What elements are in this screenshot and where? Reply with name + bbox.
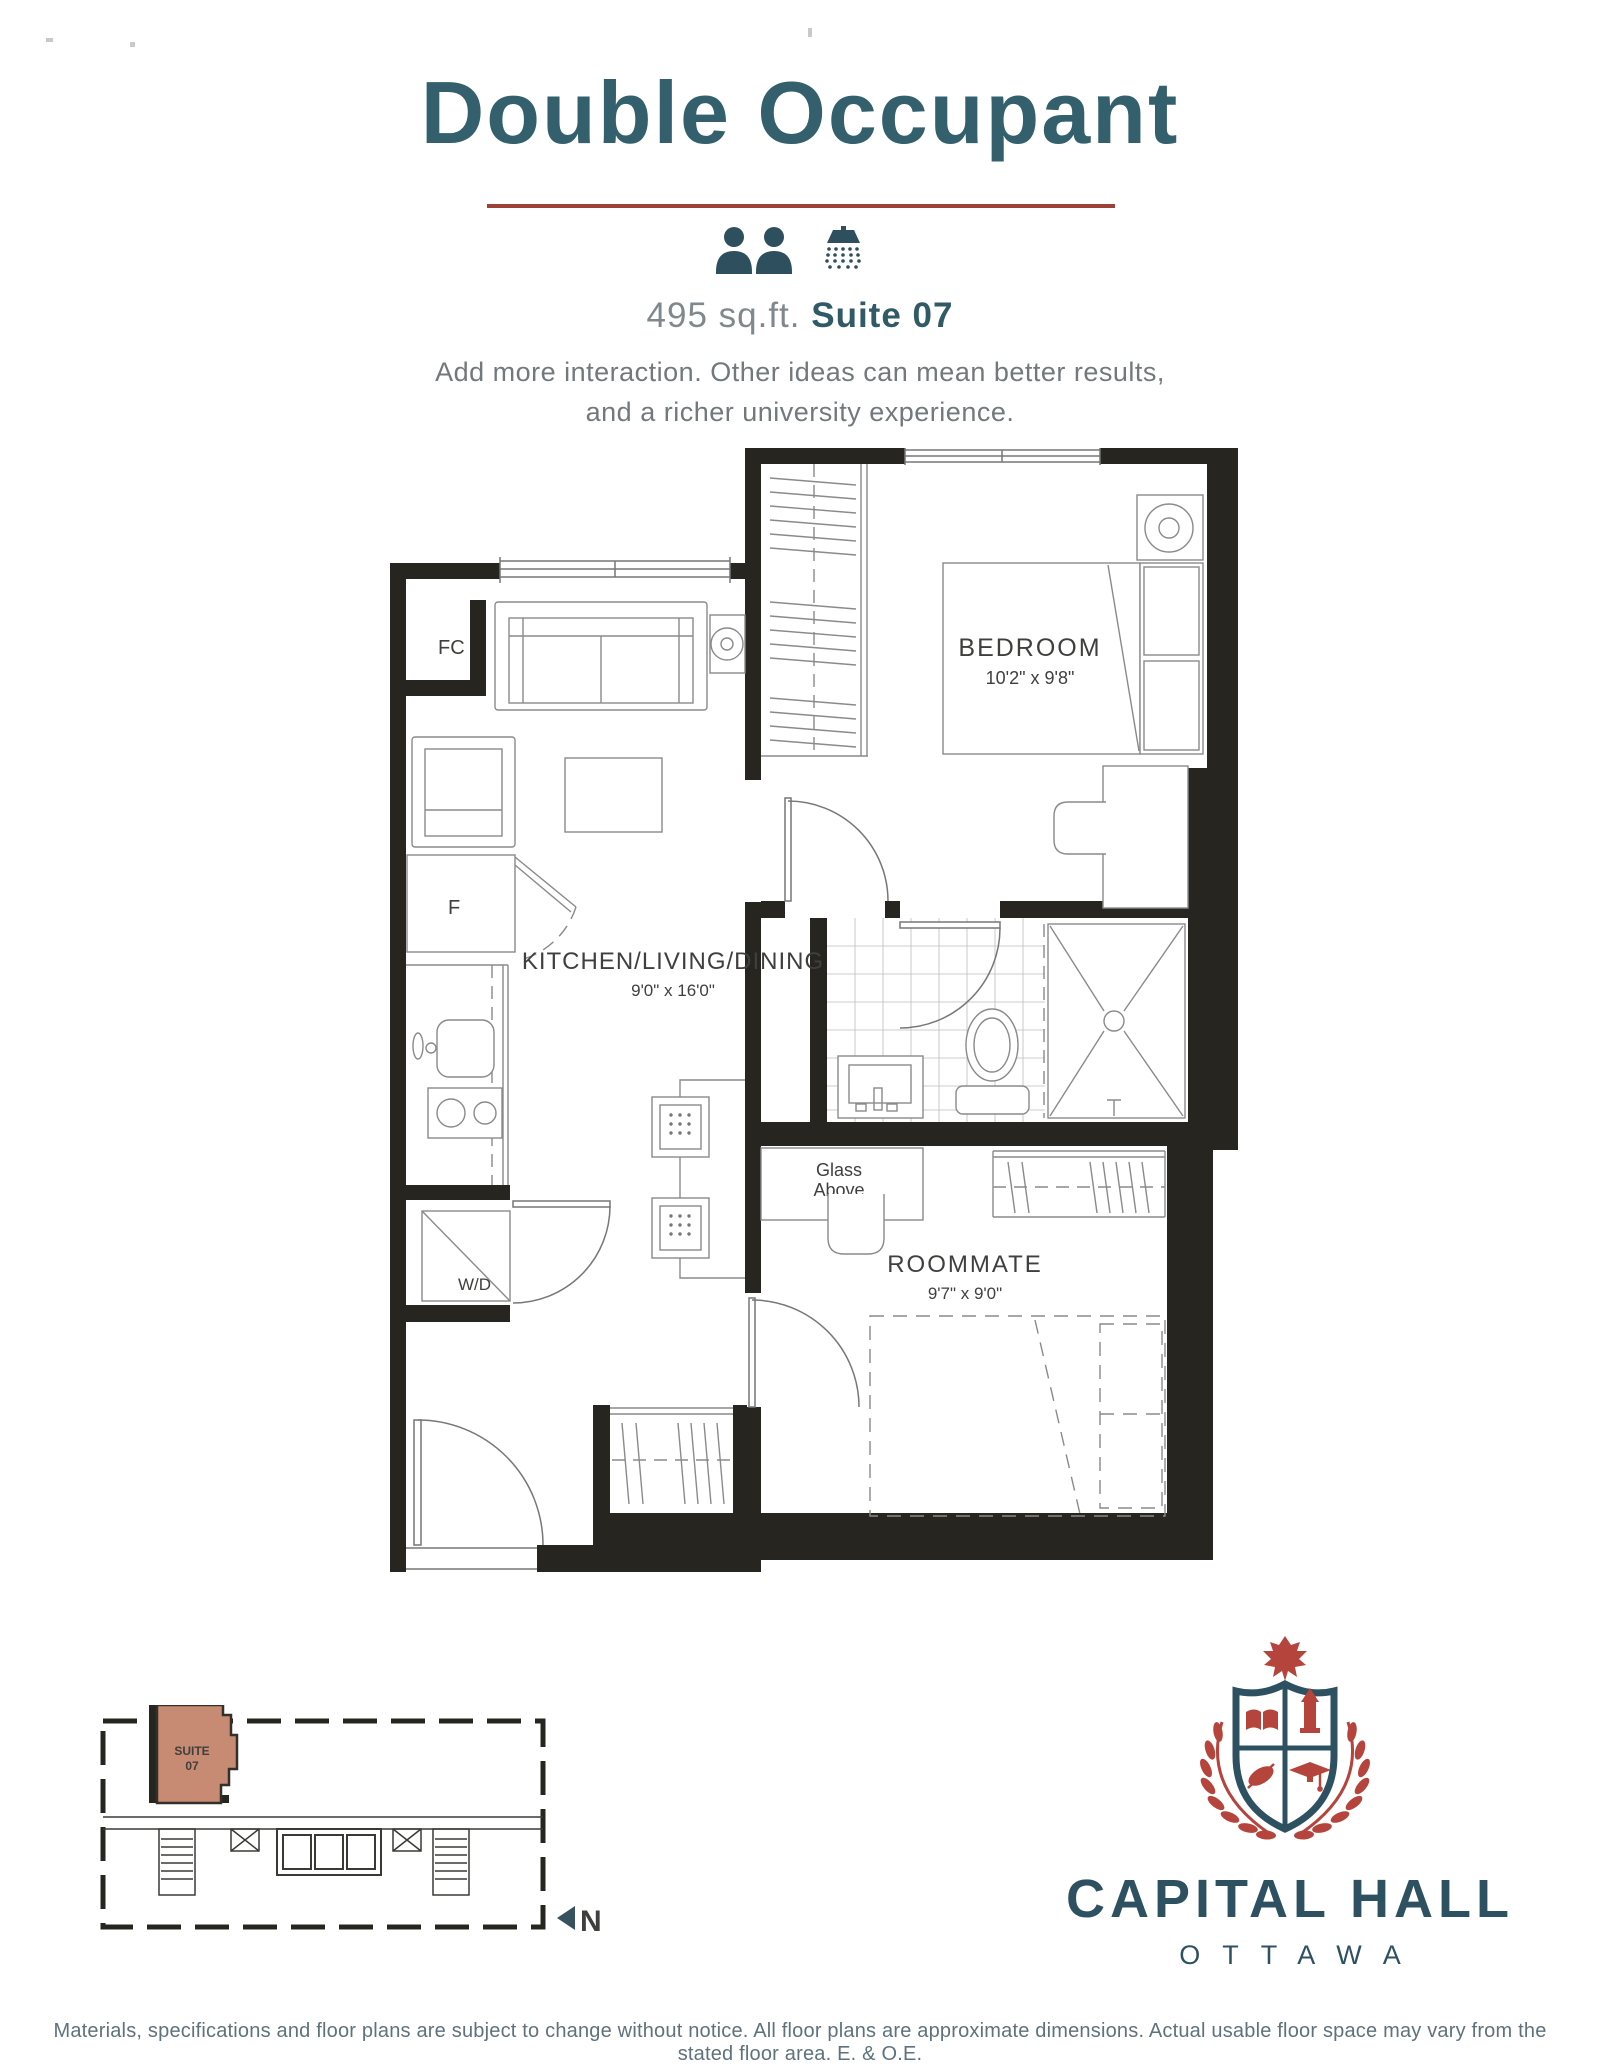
keyplan-svg: SUITE 07 N — [95, 1705, 615, 1945]
side-table — [710, 615, 745, 673]
brand-block: CAPITAL HALL OTTAWA — [1010, 1868, 1570, 1971]
room-dims-bedroom: 10'2" x 9'8" — [986, 668, 1075, 688]
suite-label: SUITE — [174, 1744, 209, 1758]
footer-disclaimer: Materials, specifications and floor plan… — [30, 2020, 1570, 2066]
fc-label: FC — [438, 637, 465, 659]
room-label-roommate: ROOMMATE — [887, 1251, 1043, 1278]
shaft — [393, 1829, 421, 1851]
suite-highlight: SUITE 07 — [157, 1705, 237, 1803]
bedroom: BEDROOM 10'2" x 9'8" — [761, 464, 1203, 908]
cooktop — [428, 1088, 502, 1138]
wall — [747, 1513, 1213, 1560]
maple-leaf-icon — [1263, 1636, 1307, 1681]
crest-logo — [1160, 1636, 1410, 1864]
bedroom-door — [785, 798, 888, 901]
scan-artifact — [808, 28, 812, 37]
description-line-1: Add more interaction. Other ideas can me… — [0, 352, 1600, 392]
desk — [1054, 766, 1188, 908]
brand-city: OTTAWA — [1010, 1940, 1570, 1971]
room-dims-kitchen: 9'0" x 16'0" — [631, 981, 715, 1000]
vanity — [838, 1056, 923, 1118]
roommate-door — [749, 1298, 859, 1407]
north-label: N — [580, 1905, 602, 1938]
wall — [390, 563, 406, 1572]
wd-label: W/D — [458, 1275, 491, 1294]
window — [905, 448, 1100, 465]
wall — [745, 448, 761, 780]
brochure-page: Double Occupant 495 — [0, 0, 1600, 2070]
scan-artifact — [130, 42, 135, 47]
fridge: F — [407, 855, 576, 960]
suite-number: 07 — [185, 1759, 199, 1773]
entry-closet — [610, 1408, 733, 1504]
room-dims-roommate: 9'7" x 9'0" — [928, 1284, 1002, 1303]
title-underline — [487, 204, 1115, 208]
bed-optional — [870, 1316, 1165, 1516]
description: Add more interaction. Other ideas can me… — [0, 352, 1600, 432]
wall — [537, 1545, 761, 1572]
bathroom — [827, 918, 1185, 1122]
hangers — [622, 1423, 724, 1504]
area-text: 495 sq.ft. — [647, 296, 812, 335]
scan-artifact — [46, 38, 53, 42]
wall — [593, 1405, 610, 1513]
wall — [761, 901, 785, 918]
person-icon — [756, 227, 792, 274]
page-title: Double Occupant — [0, 62, 1600, 164]
roommate-room: Glass Above ROOMMATE 9'7" x 9'0" — [761, 1148, 1165, 1516]
living-kitchen: FC F — [406, 602, 824, 1504]
fridge-label: F — [448, 897, 460, 919]
glass-above-desk: Glass Above — [761, 1148, 923, 1254]
shaft — [231, 1829, 259, 1851]
wall — [406, 680, 486, 696]
brand-name: CAPITAL HALL — [1010, 1868, 1570, 1930]
stairwell — [433, 1829, 469, 1895]
shower-icon — [825, 226, 861, 269]
stairwell — [159, 1829, 195, 1895]
closet — [761, 464, 868, 756]
shower — [1044, 924, 1185, 1118]
armchair — [412, 737, 515, 847]
desk-chair — [1054, 802, 1106, 854]
person-icon — [716, 227, 752, 274]
bar-stool — [652, 1097, 709, 1157]
glass-above-label: Glass — [816, 1160, 862, 1180]
wall — [885, 901, 900, 918]
wall — [406, 1305, 510, 1322]
wall — [406, 1185, 510, 1200]
north-triangle-icon — [557, 1906, 575, 1930]
wall — [733, 1405, 747, 1513]
shield-icon — [1236, 1684, 1334, 1829]
room-label-bedroom: BEDROOM — [958, 634, 1101, 662]
shower-head-icon — [1107, 1100, 1121, 1116]
washer-dryer: W/D — [422, 1211, 510, 1301]
bar-stool — [652, 1198, 709, 1258]
sink — [413, 1020, 494, 1077]
suite-text: Suite 07 — [811, 296, 953, 335]
corridor — [103, 1817, 543, 1829]
shower-spray-dots — [825, 247, 861, 269]
sofa — [495, 602, 707, 710]
floorplan-svg: BEDROOM 10'2" x 9'8" — [390, 448, 1240, 1593]
wall — [1188, 768, 1238, 1150]
wall — [1167, 1122, 1213, 1560]
night-table — [1137, 495, 1203, 560]
elevators — [277, 1829, 381, 1875]
closet — [993, 1151, 1165, 1217]
wall — [593, 1513, 747, 1545]
north-arrow: N — [557, 1905, 602, 1938]
desk-chair — [828, 1194, 884, 1254]
laundry-door — [513, 1201, 610, 1303]
wall — [761, 1122, 1213, 1146]
hangers — [770, 478, 856, 747]
icons-svg — [715, 224, 885, 280]
wall — [1207, 448, 1238, 778]
spec-line: 495 sq.ft. Suite 07 — [0, 296, 1600, 336]
description-line-2: and a richer university experience. — [0, 392, 1600, 432]
room-label-kitchen: KITCHEN/LIVING/DINING — [522, 948, 824, 975]
kitchen-counter — [406, 965, 508, 1185]
occupancy-icons — [0, 224, 1600, 285]
coffee-table — [565, 758, 662, 832]
entry-door — [406, 1420, 543, 1569]
window — [500, 557, 730, 583]
